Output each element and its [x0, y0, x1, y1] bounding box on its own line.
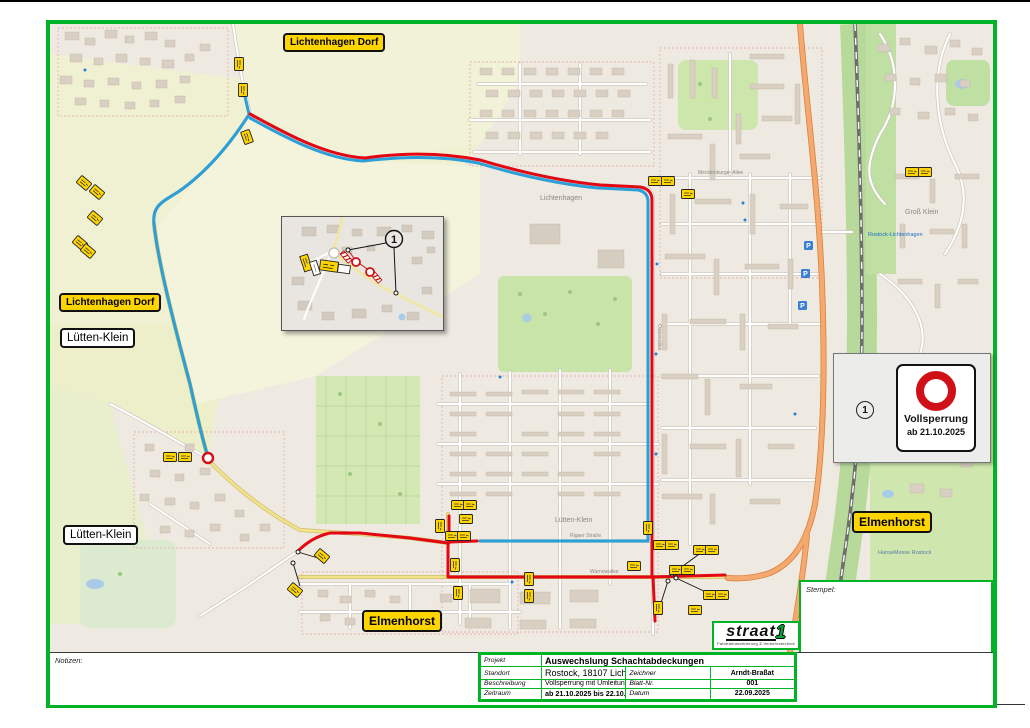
svg-text:Mecklenburger Allee: Mecklenburger Allee [698, 170, 744, 176]
legend-number: 1 [862, 405, 868, 416]
title-label-datum: Datum [626, 688, 710, 699]
legend-number-circle: 1 [856, 401, 874, 419]
closure-symbol [203, 453, 213, 463]
title-block: Projekt Auswechslung Schachtabdeckungen … [478, 652, 797, 702]
notes-label: Notizen: [55, 656, 83, 665]
title-value-projekt: Auswechslung Schachtabdeckungen [542, 655, 795, 667]
title-row-beschreibung: Beschreibung Vollsperrung mit Umleitung … [481, 679, 795, 688]
inset-roundabout [329, 248, 339, 258]
title-row-projekt: Projekt Auswechslung Schachtabdeckungen [481, 655, 795, 667]
title-label-standort: Standort [481, 667, 542, 679]
place-sign-label: Elmenhorst [859, 515, 925, 529]
title-value-zeitraum: ab 21.10.2025 bis 22.10.2025 [542, 688, 626, 699]
svg-text:HanseMesse Rostock: HanseMesse Rostock [878, 550, 932, 556]
inset-pond [399, 314, 406, 321]
inset-callout-number: 1 [391, 234, 397, 246]
company-logo: straat1 Fahrbahnmarkierung & Verkehrstec… [712, 621, 800, 650]
plan-frame: P P P [46, 20, 997, 708]
svg-text:P: P [806, 243, 811, 250]
svg-text:Lütten-Klein: Lütten-Klein [555, 517, 592, 524]
place-sign-label: Lichtenhagen Dorf [290, 37, 378, 48]
place-sign-elmenhorst-right: Elmenhorst [852, 511, 932, 533]
logo-one: 1 [776, 623, 786, 641]
svg-text:Ostseeallee: Ostseeallee [656, 324, 662, 351]
title-value-zeichner: Arndt-Braßat [710, 667, 794, 679]
inset-node [394, 291, 398, 295]
title-value-standort: Rostock, 18107 Lichtenhagen, Dorfstraße … [542, 667, 626, 679]
title-label-zeitraum: Zeitraum [481, 688, 542, 699]
traffic-plan-sheet: P P P [0, 0, 1030, 728]
place-sign-lichtenhagen-dorf-top: Lichtenhagen Dorf [283, 33, 385, 52]
place-sign-luetten-klein-bottom: Lütten-Klein [63, 525, 138, 545]
svg-text:P: P [803, 271, 808, 278]
inset-node [346, 248, 350, 252]
svg-text:Rostock-Lichtenhagen: Rostock-Lichtenhagen [868, 232, 923, 238]
detail-inset-box: 1 [281, 216, 444, 331]
place-sign-label: Lichtenhagen Dorf [66, 297, 154, 308]
inset-closure-ring [366, 268, 374, 276]
vollsperrung-sign: Vollsperrung ab 21.10.2025 [896, 364, 976, 452]
place-sign-label: Lütten-Klein [70, 529, 131, 541]
svg-text:Lichtenhagen: Lichtenhagen [540, 195, 582, 202]
title-value-blattnr: 001 [710, 679, 794, 688]
title-value-beschreibung: Vollsperrung mit Umleitung [542, 679, 626, 688]
no-vehicles-sign-icon [916, 371, 956, 411]
place-sign-luetten-klein-left: Lütten-Klein [60, 328, 135, 348]
title-block-table: Projekt Auswechslung Schachtabdeckungen … [480, 654, 795, 700]
svg-text:Rigaer Straße: Rigaer Straße [570, 533, 601, 539]
page-top-edge [0, 0, 1030, 2]
svg-text:Groß Klein: Groß Klein [905, 209, 939, 216]
vollsperrung-date: ab 21.10.2025 [898, 427, 974, 437]
place-sign-lichtenhagen-dorf-left: Lichtenhagen Dorf [59, 293, 161, 312]
inset-map: 1 [282, 217, 443, 330]
logo-wordmark: straat [726, 624, 776, 641]
map-svg: P P P [50, 24, 993, 652]
title-value-datum: 22.09.2025 [710, 688, 794, 699]
title-label-beschreibung: Beschreibung [481, 679, 542, 688]
svg-text:Warnowallee: Warnowallee [590, 569, 619, 575]
place-sign-elmenhorst-bottom: Elmenhorst [362, 610, 442, 632]
place-sign-label: Lütten-Klein [67, 332, 128, 344]
logo-tagline: Fahrbahnmarkierung & Verkehrstechnik [714, 641, 798, 646]
stamp-label: Stempel: [806, 585, 836, 594]
vollsperrung-title: Vollsperrung [898, 413, 974, 425]
svg-text:P: P [800, 303, 805, 310]
title-label-blattnr: Blatt-Nr. [626, 679, 710, 688]
title-label-zeichner: Zeichner [626, 667, 710, 679]
legend-box: 1 Vollsperrung ab 21.10.2025 [833, 353, 991, 463]
inset-closure-ring [352, 258, 360, 266]
title-row-standort: Standort Rostock, 18107 Lichtenhagen, Do… [481, 667, 795, 679]
place-sign-label: Elmenhorst [369, 614, 435, 628]
map-canvas: P P P [50, 24, 993, 652]
title-row-zeitraum: Zeitraum ab 21.10.2025 bis 22.10.2025 Da… [481, 688, 795, 699]
title-label-projekt: Projekt [481, 655, 542, 667]
